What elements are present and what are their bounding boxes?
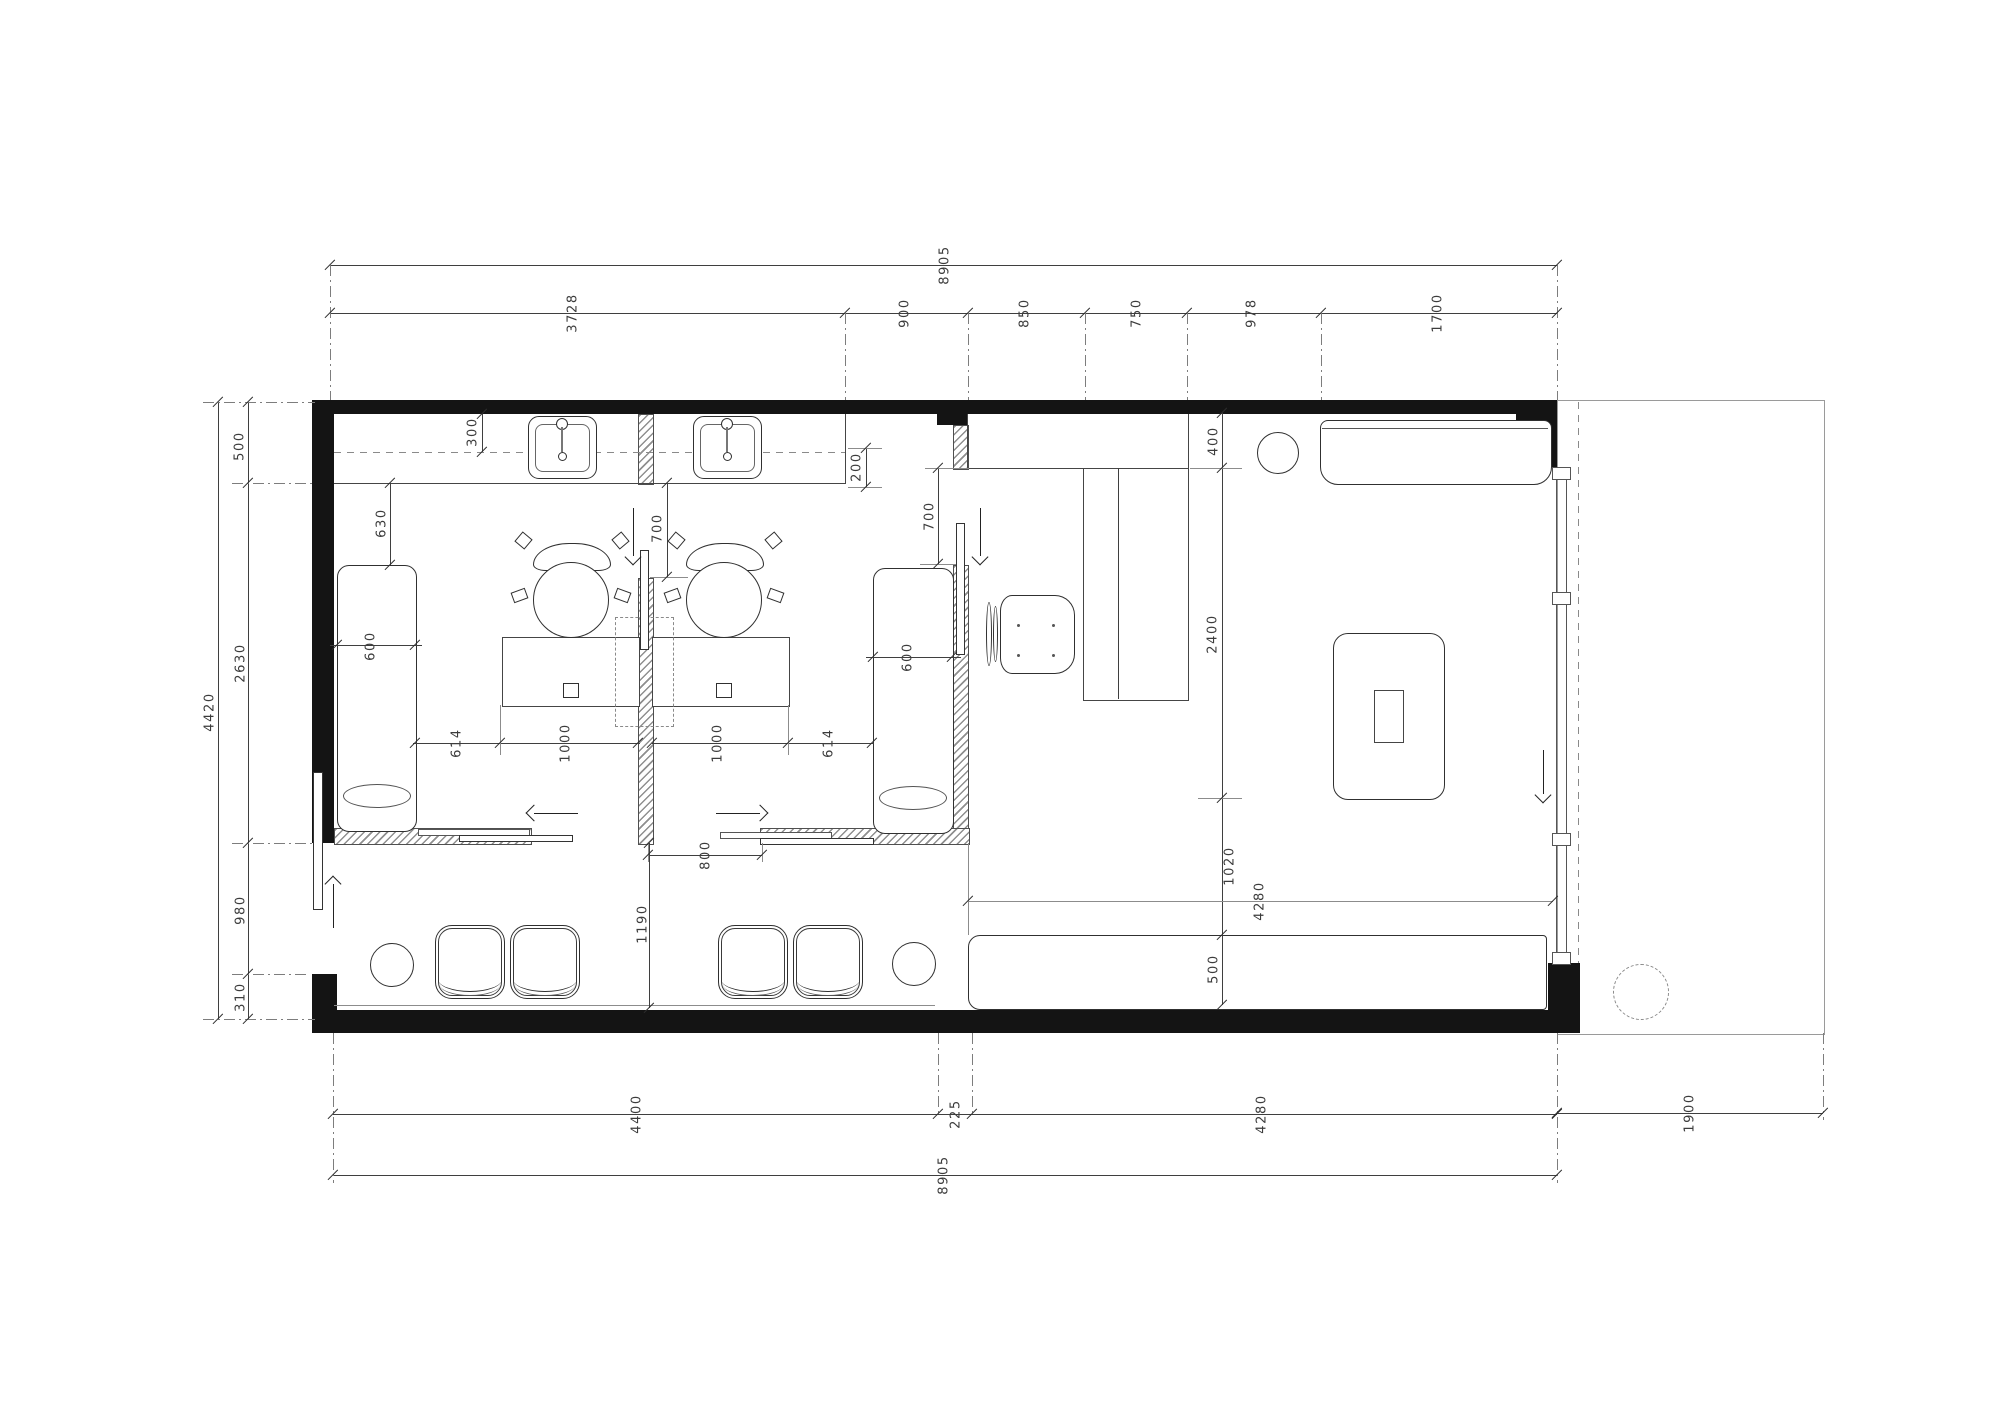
dim-label-700-door1: 700 [651, 513, 666, 543]
site-boundary-dashed-line [1578, 402, 1579, 1008]
reception-chair-bolt-2 [1052, 624, 1055, 627]
dim-line-room1-row [413, 743, 640, 744]
dim-label-200: 200 [850, 452, 865, 482]
entry-door-leaf [313, 772, 323, 910]
chair1-tab-left [514, 531, 532, 549]
window-mullion-1 [1552, 467, 1571, 480]
reception-chair-bolt-4 [1052, 654, 1055, 657]
sink2-drain [723, 452, 732, 461]
waiting-chair-4 [793, 925, 863, 999]
wall-bottom-inner-edge [334, 1005, 935, 1006]
reception-stool [1257, 432, 1299, 474]
dim-line-left-chain [248, 402, 249, 1019]
dim-line-room2-row [652, 743, 874, 744]
dim-line-bottom-chain [333, 1114, 1557, 1115]
ext-hall-left [968, 843, 969, 935]
chair2-armrest-left [664, 588, 682, 603]
chair2-base-tab [716, 683, 732, 698]
ext-bottom-right [1557, 1033, 1558, 1183]
ext-left-bottom [203, 1019, 315, 1020]
waiting-chair-3 [718, 925, 788, 999]
dim-label-400: 400 [1207, 426, 1222, 456]
dim-label-1000-r2: 1000 [711, 723, 726, 762]
window-outer-line [1556, 467, 1557, 963]
dim-label-600-bed1: 600 [364, 631, 379, 661]
dim-label-bottom-overall: 8905 [937, 1155, 952, 1194]
room2-slide-leaf [760, 838, 874, 845]
wall-stub-partition2 [937, 410, 967, 425]
ext-top-1321 [1321, 313, 1322, 400]
sofa-top [1320, 420, 1552, 485]
dim-label-700-door2: 700 [923, 501, 938, 531]
ext-row2-788 [788, 705, 789, 755]
room2-exit-arrow-head [752, 805, 769, 822]
chair1-seat [533, 562, 609, 638]
exterior-terrace-outline [1557, 400, 1825, 1035]
dim-label-900: 900 [898, 298, 913, 328]
dim-label-225: 225 [949, 1099, 964, 1129]
wall-corner-bottom-left [312, 974, 337, 1014]
entrance-arrow-head [325, 876, 342, 893]
dim-label-2630: 2630 [234, 643, 249, 682]
room1-exit-arrow-head [526, 805, 543, 822]
ext-700r1-low [650, 577, 688, 578]
dim-label-614-r1: 614 [450, 728, 465, 758]
floor-plan-canvas: 8905 3728 900 850 750 978 1700 4420 500 … [0, 0, 2000, 1413]
ext-bottom-1823 [1823, 1033, 1824, 1120]
chair2-tab-right [764, 531, 782, 549]
ext-row1-500 [500, 705, 501, 755]
reception-desk [1083, 468, 1189, 701]
dim-label-1020: 1020 [1223, 846, 1238, 885]
window-inner-line [1566, 467, 1567, 963]
dim-label-300: 300 [466, 417, 481, 447]
ext-top-right [1557, 265, 1558, 400]
door1-arrow-head [625, 549, 642, 566]
dim-label-1000-r1: 1000 [559, 723, 574, 762]
dim-line-right-chain [1222, 413, 1223, 1005]
dim-label-310: 310 [234, 982, 249, 1012]
dim-line-counter-end [866, 448, 867, 487]
ext-top-968 [968, 313, 969, 400]
dim-label-850: 850 [1018, 298, 1033, 328]
dim-label-1190: 1190 [636, 904, 651, 943]
bed1-pillow [343, 784, 411, 808]
dim-label-top-overall: 8905 [938, 245, 953, 284]
sink1-drain [558, 452, 567, 461]
waiting-chair-1 [435, 925, 505, 999]
reception-chair-backrest-inner [993, 606, 998, 662]
ext-top-845 [845, 313, 846, 400]
dim-label-4280-bottom: 4280 [1255, 1094, 1270, 1133]
window-mullion-4 [1552, 952, 1571, 965]
chair2-seat [686, 562, 762, 638]
room1-slide-leaf [459, 835, 573, 842]
chair1-tab-right [611, 531, 629, 549]
dim-label-4420: 4420 [203, 692, 218, 731]
chair2-armrest-right [767, 588, 785, 603]
chair2-tab-left [667, 531, 685, 549]
dim-label-500-right: 500 [1207, 954, 1222, 984]
window-mullion-2 [1552, 592, 1571, 605]
bench-bottom [968, 935, 1547, 1010]
ext-left-980 [232, 974, 310, 975]
sofa-backrest-line [1322, 428, 1548, 429]
waiting-side-table-1 [370, 943, 414, 987]
ext-bottom-972 [972, 1033, 973, 1114]
door2-arrow-head [972, 549, 989, 566]
waiting-chair-2 [510, 925, 580, 999]
chair1-armrest-left [511, 588, 529, 603]
door1-leaf [640, 550, 649, 650]
waiting-side-table-2 [892, 942, 936, 986]
ext-top-1187 [1187, 313, 1188, 400]
chair1-base-tab [563, 683, 579, 698]
dim-label-614-r2: 614 [822, 728, 837, 758]
wall-bottom [312, 1010, 1580, 1033]
reception-chair-bolt-3 [1017, 654, 1020, 657]
dim-label-2400: 2400 [1206, 614, 1221, 653]
dim-label-1900: 1900 [1683, 1093, 1698, 1132]
dim-line-left-overall [218, 402, 219, 1019]
sink1-faucet-stem [561, 427, 563, 452]
dim-label-600-bed2: 600 [901, 642, 916, 672]
dim-label-980: 980 [234, 895, 249, 925]
reception-chair-backrest-outer [986, 602, 992, 666]
exterior-column-dashed-circle [1613, 964, 1669, 1020]
hall-table-pedestal [1374, 690, 1404, 743]
window-mullion-3 [1552, 833, 1571, 846]
dim-label-750: 750 [1130, 298, 1145, 328]
door2-leaf [956, 523, 965, 655]
dim-label-4280-hall: 4280 [1253, 881, 1268, 920]
ext-bottom-left [333, 1033, 334, 1183]
dim-label-800: 800 [699, 840, 714, 870]
ext-top-left [330, 265, 331, 400]
reception-back-counter [967, 414, 1189, 469]
dim-label-3728: 3728 [566, 293, 581, 332]
bed2-pillow [879, 786, 947, 810]
wall-top [312, 400, 1557, 414]
window-door-arrow-head [1535, 787, 1552, 804]
wall-corner-bottom-right [1548, 963, 1580, 1033]
sink2-faucet-stem [726, 427, 728, 452]
reception-chair-seat [1000, 595, 1075, 674]
dim-label-1700: 1700 [1431, 293, 1446, 332]
reception-chair-bolt-1 [1017, 624, 1020, 627]
dim-line-door2 [938, 468, 939, 564]
dim-line-top-chain [330, 313, 1557, 314]
dim-label-500-left: 500 [233, 431, 248, 461]
dim-label-978: 978 [1245, 298, 1260, 328]
ext-bottom-938 [938, 1033, 939, 1114]
ext-right-468 [1190, 468, 1242, 469]
chair1-armrest-right [614, 588, 632, 603]
ext-top-1085 [1085, 313, 1086, 400]
ext-700r2-up [925, 468, 969, 469]
dim-label-630: 630 [375, 508, 390, 538]
dim-line-counter-depth [482, 414, 483, 452]
dim-label-4400: 4400 [630, 1094, 645, 1133]
reception-desk-worktop-edge [1118, 468, 1119, 699]
ext-left-top [203, 402, 315, 403]
dim-line-bed1-offset [390, 483, 391, 565]
dim-line-door1 [667, 483, 668, 577]
